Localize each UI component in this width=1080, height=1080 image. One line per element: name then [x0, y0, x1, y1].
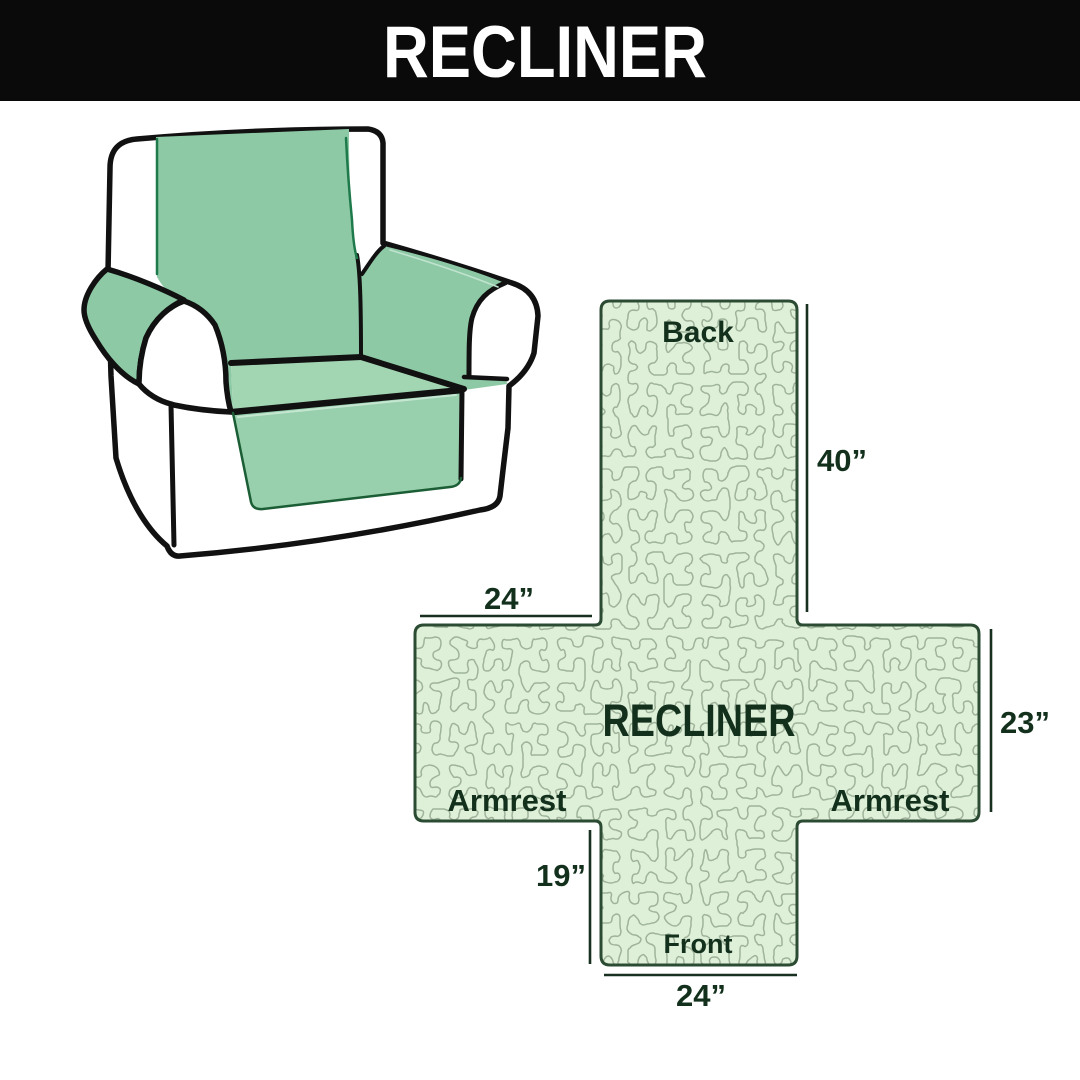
svg-text:Back: Back — [662, 316, 734, 349]
svg-text:24”: 24” — [676, 978, 726, 1013]
svg-text:40”: 40” — [817, 443, 867, 478]
svg-text:24”: 24” — [484, 581, 534, 616]
svg-text:Armrest: Armrest — [448, 783, 567, 818]
svg-text:Front: Front — [664, 929, 733, 959]
svg-text:Armrest: Armrest — [831, 783, 950, 818]
svg-text:19”: 19” — [536, 858, 586, 893]
svg-text:23”: 23” — [1000, 705, 1050, 740]
svg-text:RECLINER: RECLINER — [603, 695, 796, 746]
svg-text:RECLINER: RECLINER — [383, 12, 707, 93]
